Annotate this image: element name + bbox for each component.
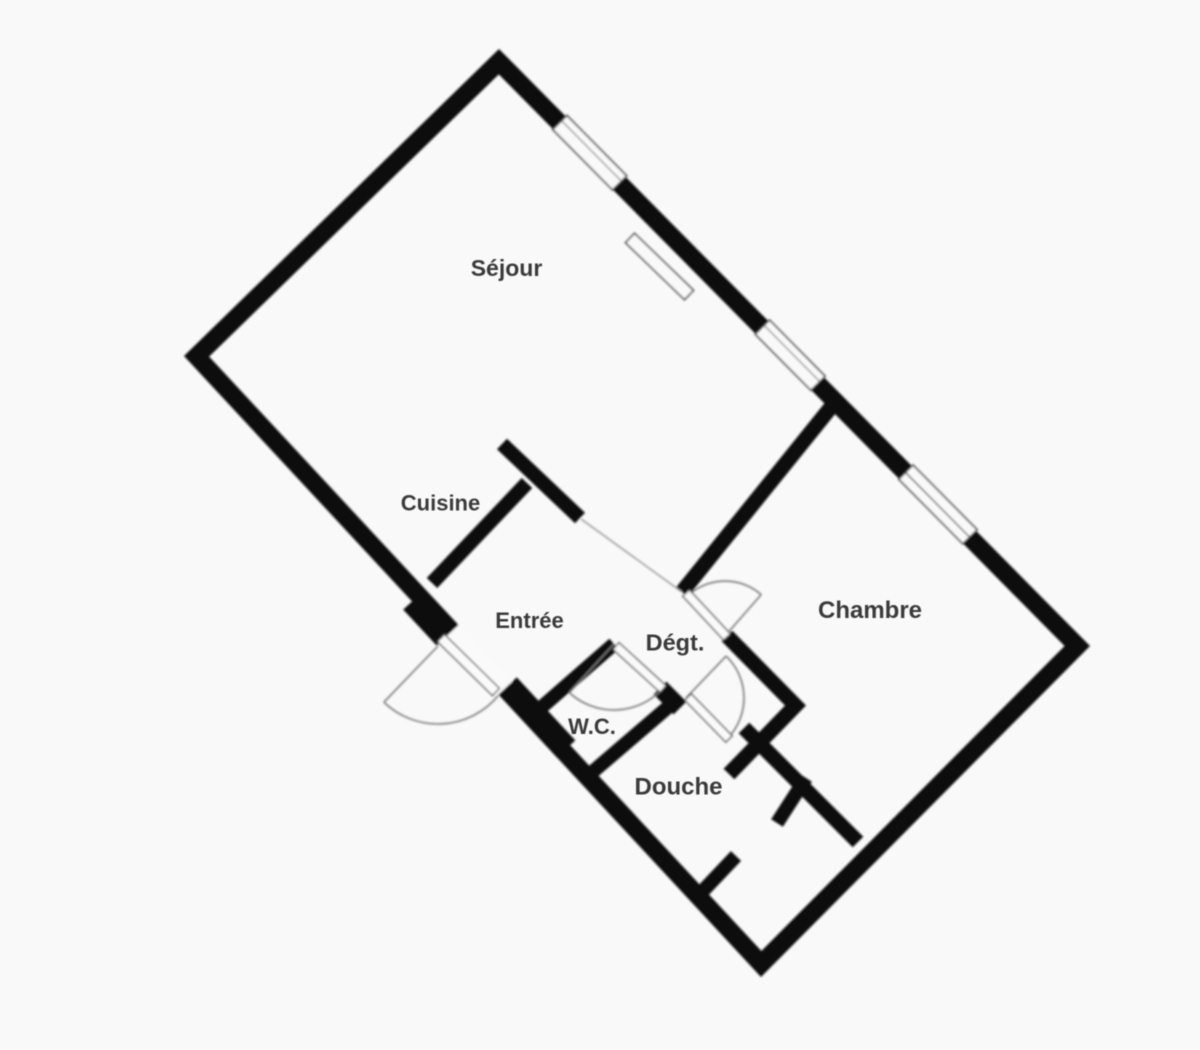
svg-text:Chambre: Chambre <box>818 597 922 624</box>
svg-text:Séjour: Séjour <box>471 255 543 281</box>
svg-text:Entrée: Entrée <box>495 608 563 633</box>
svg-text:W.C.: W.C. <box>568 714 616 739</box>
svg-text:Douche: Douche <box>634 773 722 800</box>
svg-text:Dégt.: Dégt. <box>646 630 705 656</box>
svg-text:Cuisine: Cuisine <box>401 490 480 515</box>
